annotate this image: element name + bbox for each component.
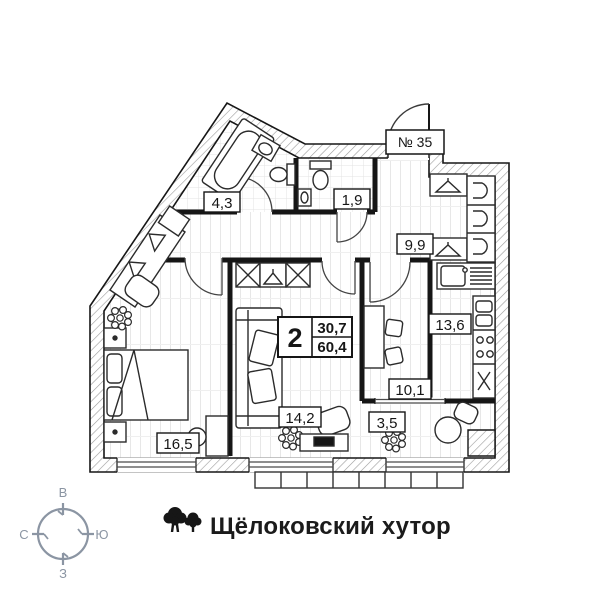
svg-text:1,9: 1,9	[342, 192, 363, 209]
room-label-bathroom: 4,3	[204, 192, 240, 212]
living-window	[249, 458, 333, 473]
compass-letter-right: Ю	[95, 527, 108, 542]
kitchen-right-counter	[473, 296, 495, 398]
room-label-room: 10,1	[389, 379, 431, 399]
unit-number-label: № 35	[386, 130, 444, 154]
hall-shelf-unit	[467, 176, 495, 262]
svg-text:№ 35: № 35	[398, 134, 433, 150]
floor-plan: 4,3 1,9 9,9 13,6 10,1 3,5 14,2 16,5	[0, 0, 600, 600]
svg-text:13,6: 13,6	[435, 317, 464, 334]
brand-name: Щёлоковский хутор	[210, 513, 451, 540]
compass-letter-left: С	[19, 527, 28, 542]
windows	[117, 458, 464, 473]
sofa	[236, 308, 282, 428]
svg-text:3,5: 3,5	[377, 415, 398, 432]
room-label-wc: 1,9	[334, 189, 370, 209]
room-table	[364, 306, 384, 368]
svg-text:14,2: 14,2	[285, 410, 314, 427]
room-label-living: 14,2	[279, 407, 321, 427]
compass-letter-bottom: З	[59, 566, 67, 581]
living-area: 30,7	[317, 320, 346, 337]
balcony-glazing-bottom	[386, 458, 464, 473]
bed	[104, 350, 188, 420]
floorplan-page: 4,3 1,9 9,9 13,6 10,1 3,5 14,2 16,5	[0, 0, 600, 600]
apartment-info-box: 2 30,7 60,4	[278, 317, 352, 357]
living-wardrobe-row	[236, 263, 310, 287]
trees-icon	[164, 507, 202, 532]
balcony-corner-pier	[468, 430, 495, 456]
balcony-table	[435, 417, 461, 443]
svg-text:4,3: 4,3	[212, 195, 233, 212]
hall-wardrobe-2	[430, 238, 467, 260]
rooms-count: 2	[287, 323, 302, 353]
compass-letter-top: В	[59, 485, 68, 500]
desk	[206, 416, 228, 456]
brand-logo: Щёлоковский хутор	[164, 507, 451, 540]
bedroom-window	[117, 458, 196, 473]
wc-sink	[298, 189, 311, 206]
chair	[385, 319, 403, 337]
kitchen-sink-counter	[437, 263, 495, 289]
tv-stand	[300, 434, 348, 451]
chair	[385, 347, 404, 366]
tv	[314, 437, 334, 446]
fridge	[476, 301, 492, 312]
room-label-kitchen: 13,6	[429, 314, 471, 334]
compass-rose: В Ю З С	[19, 485, 108, 581]
svg-text:10,1: 10,1	[395, 382, 424, 399]
total-area: 60,4	[317, 339, 347, 356]
svg-text:16,5: 16,5	[163, 436, 192, 453]
balcony-railing	[255, 472, 463, 488]
room-label-hallway: 9,9	[397, 234, 433, 254]
hall-wardrobe-1	[430, 174, 467, 196]
svg-text:9,9: 9,9	[405, 237, 426, 254]
room-label-balcony: 3,5	[369, 412, 405, 432]
room-label-bedroom: 16,5	[157, 433, 199, 453]
